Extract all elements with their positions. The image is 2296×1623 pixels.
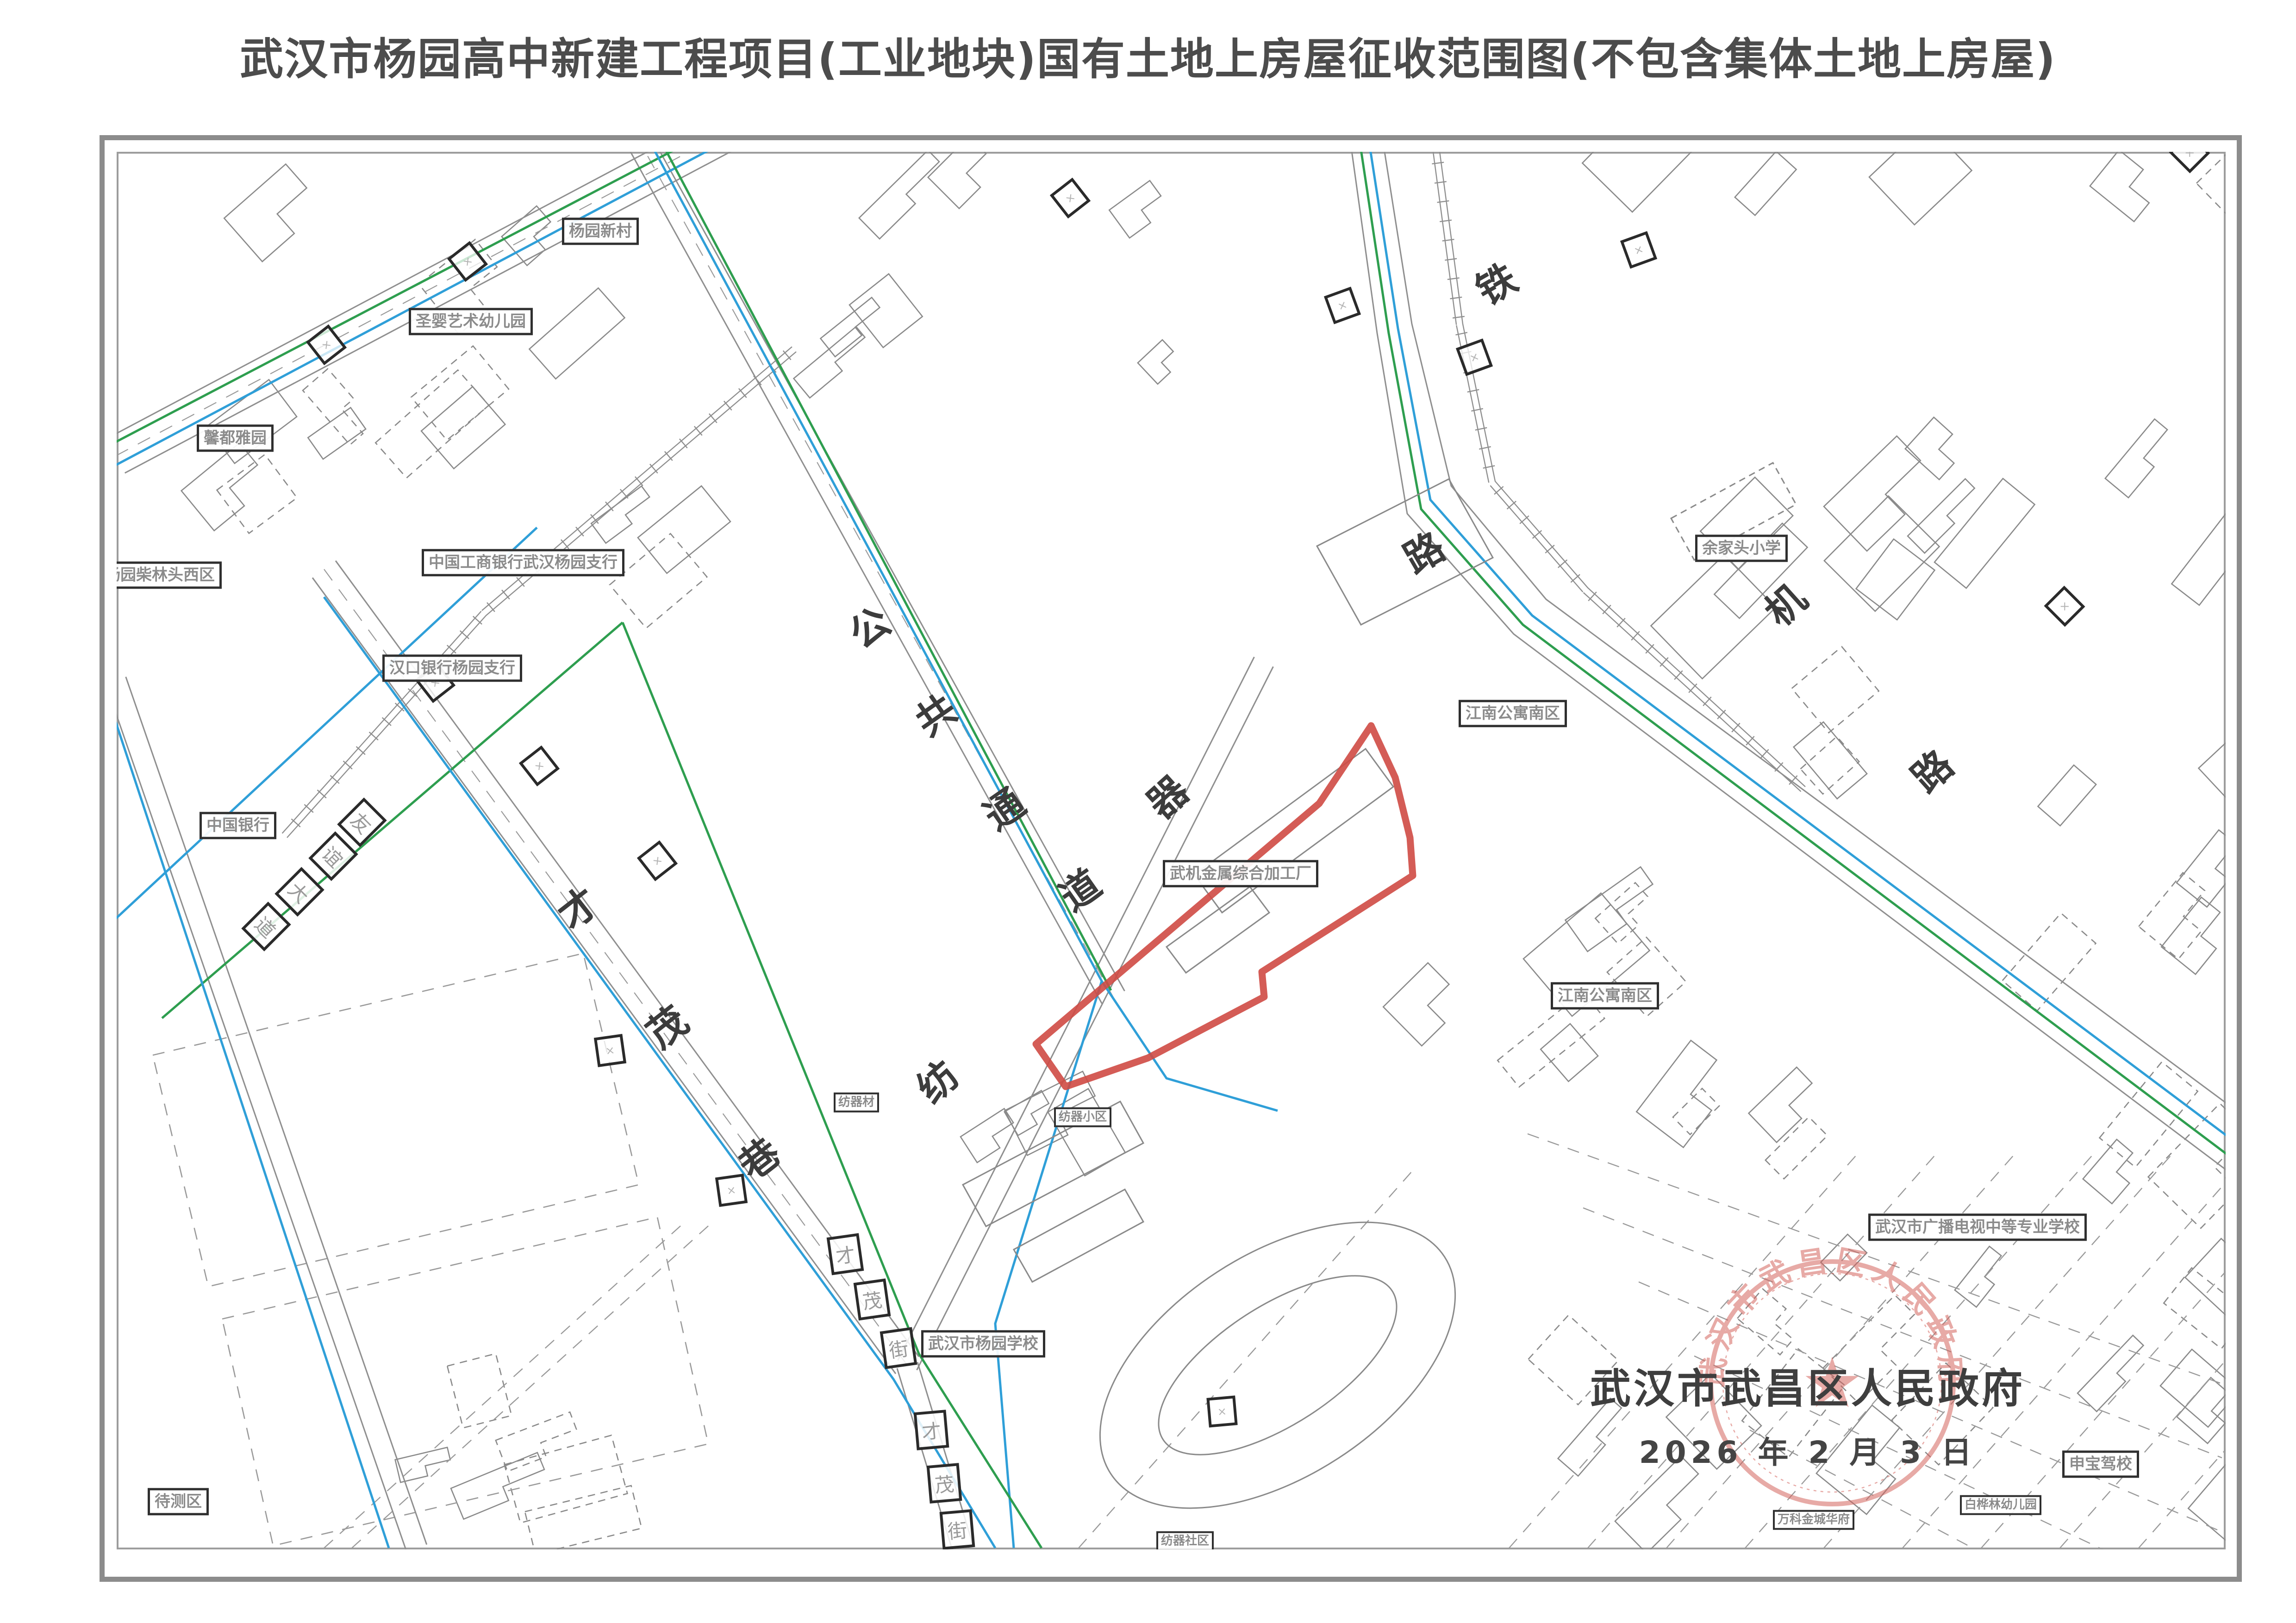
- place-label[interactable]: 余家头小学: [1695, 535, 1788, 562]
- place-label[interactable]: 万科金城华府: [1773, 1510, 1854, 1530]
- boxed-road-char: 街: [880, 1327, 917, 1369]
- boxed-road-char: 才: [827, 1233, 864, 1275]
- place-label[interactable]: 纺器材: [834, 1093, 879, 1113]
- place-label[interactable]: 武昌杨园柴林头西区: [117, 561, 222, 589]
- place-label[interactable]: 江南公寓南区: [1551, 982, 1659, 1009]
- place-label[interactable]: 申宝驾校: [2062, 1450, 2139, 1478]
- boxed-road-char: 才: [914, 1410, 949, 1450]
- place-label[interactable]: 待测区: [148, 1488, 209, 1515]
- survey-marker-box: ×: [1206, 1395, 1237, 1427]
- place-label[interactable]: 中国工商银行武汉杨园支行: [422, 549, 624, 576]
- page-title: 武汉市杨园高中新建工程项目(工业地块)国有土地上房屋征收范围图(不包含集体土地上…: [0, 24, 2296, 87]
- survey-marker-box: ×: [594, 1034, 626, 1067]
- place-label[interactable]: 圣婴艺术幼儿园: [409, 308, 533, 335]
- place-label[interactable]: 武机金属综合加工厂: [1163, 860, 1318, 887]
- place-label[interactable]: 纺器小区: [1054, 1107, 1111, 1127]
- place-label[interactable]: 武汉市广播电视中等专业学校: [1868, 1213, 2087, 1241]
- authority-date: 2026 年 2 月 3 日: [1569, 1428, 2046, 1472]
- place-label[interactable]: 江南公寓南区: [1459, 700, 1567, 727]
- map-canvas[interactable]: 武汉市武昌区人民政府★ 杨园新村圣婴艺术幼儿园馨都雅园中国工商银行武汉杨园支行汉…: [117, 152, 2226, 1549]
- place-label[interactable]: 纺器社区: [1156, 1531, 1214, 1549]
- boxed-road-char: 茂: [854, 1279, 891, 1321]
- survey-marker-box: ×: [715, 1174, 748, 1207]
- boxed-road-char: 街: [940, 1509, 975, 1549]
- place-label[interactable]: 杨园新村: [562, 218, 639, 245]
- place-label[interactable]: 馨都雅园: [197, 424, 274, 452]
- place-label[interactable]: 白桦林幼儿园: [1960, 1495, 2041, 1515]
- authority-name: 武汉市武昌区人民政府: [1569, 1356, 2046, 1415]
- authority-block: 武汉市武昌区人民政府 2026 年 2 月 3 日: [1569, 1356, 2046, 1472]
- place-label[interactable]: 汉口银行杨园支行: [382, 654, 522, 682]
- map-sheet: 武汉市杨园高中新建工程项目(工业地块)国有土地上房屋征收范围图(不包含集体土地上…: [0, 0, 2296, 1623]
- place-label[interactable]: 武汉市杨园学校: [921, 1330, 1045, 1357]
- boxed-road-char: 茂: [927, 1463, 962, 1504]
- map-artwork: 武汉市武昌区人民政府★: [117, 152, 2226, 1549]
- place-label[interactable]: 中国银行: [200, 812, 276, 839]
